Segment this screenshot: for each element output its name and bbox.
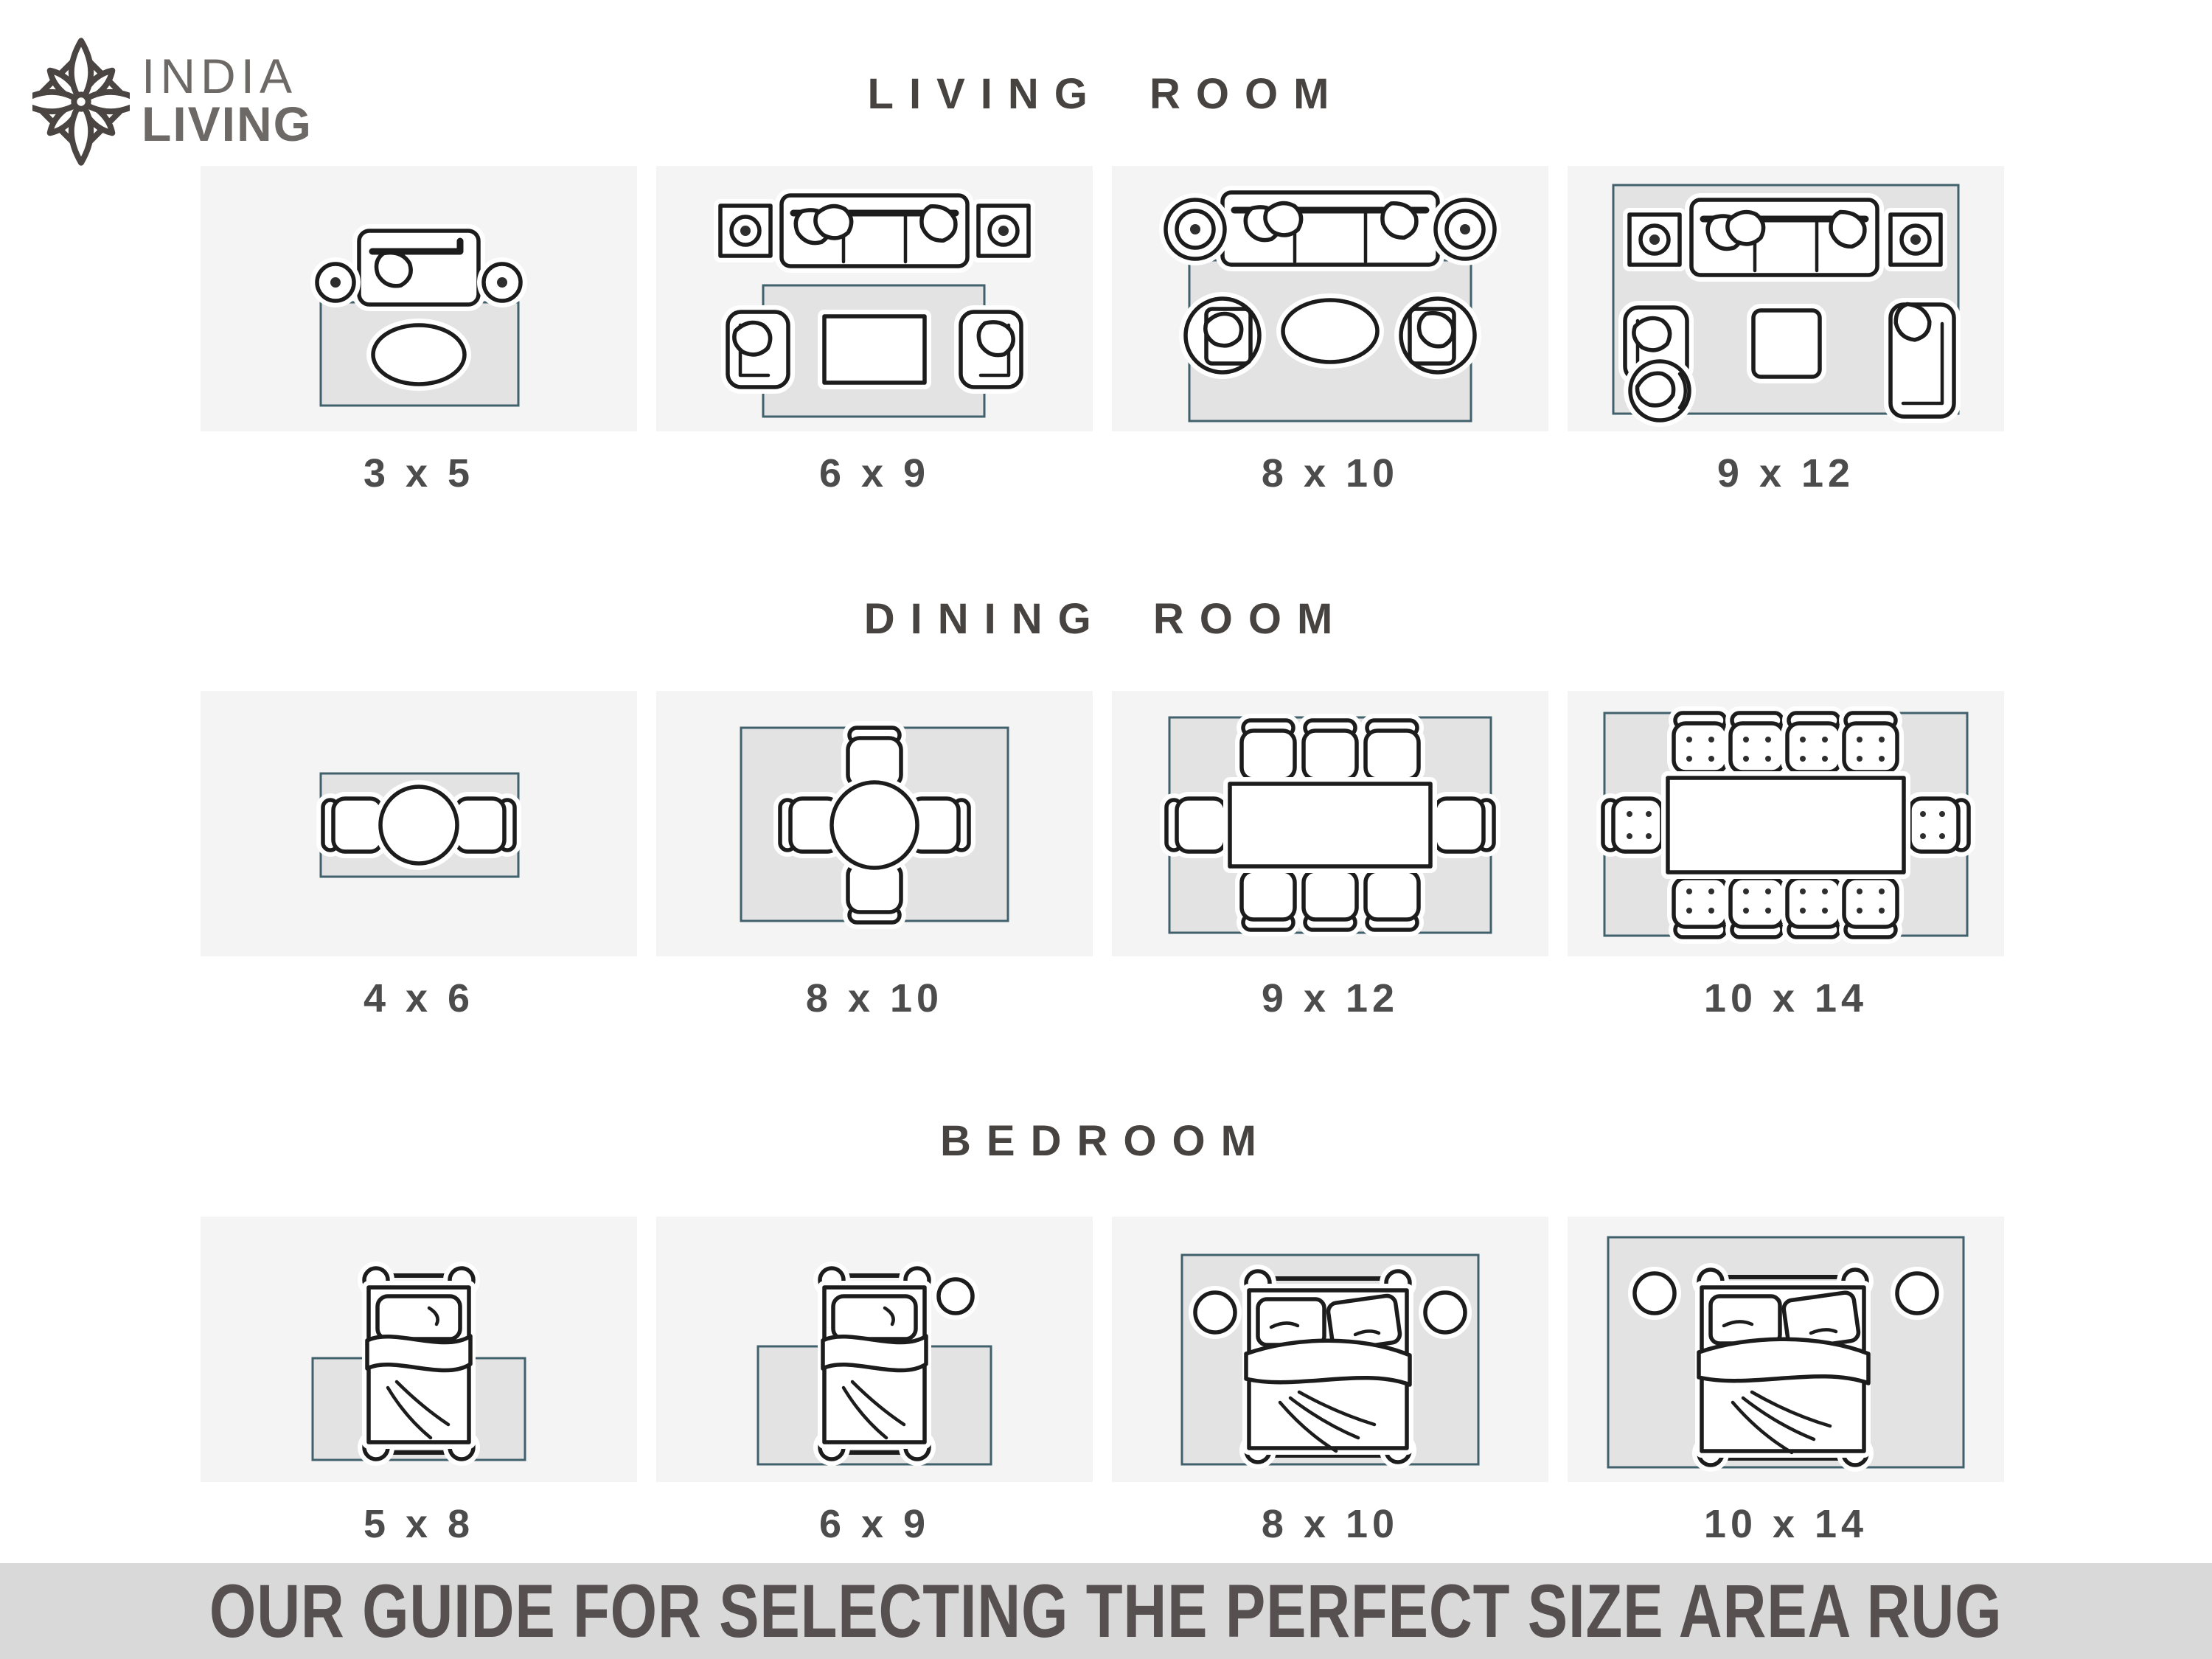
rug-size-label: 5 x 8 bbox=[201, 1501, 637, 1547]
rug-size-card: 8 x 10 bbox=[1112, 166, 1548, 496]
rug-size-label: 6 x 9 bbox=[656, 1501, 1093, 1547]
rug-size-tile bbox=[1568, 166, 2004, 431]
rug-size-card: 8 x 10 bbox=[656, 691, 1093, 1021]
rug-size-label: 4 x 6 bbox=[201, 975, 637, 1021]
living-room-row: 3 x 5 bbox=[201, 166, 2004, 496]
section-title-living-room: LIVING ROOM bbox=[0, 65, 2212, 124]
bedroom-row: 5 x 8 6 x 9 bbox=[201, 1217, 2004, 1547]
rug-size-label: 6 x 9 bbox=[656, 451, 1093, 496]
diagram-bedroom-8x10 bbox=[1112, 1217, 1548, 1482]
diagram-dining-room-9x12 bbox=[1112, 691, 1548, 956]
diagram-living-room-3x5 bbox=[201, 166, 637, 431]
rug-size-card: 10 x 14 bbox=[1568, 691, 2004, 1021]
rug-size-label: 8 x 10 bbox=[1112, 451, 1548, 496]
rug-size-card: 8 x 10 bbox=[1112, 1217, 1548, 1547]
rug-size-card: 5 x 8 bbox=[201, 1217, 637, 1547]
rug-size-tile bbox=[1568, 1217, 2004, 1482]
diagram-dining-room-8x10 bbox=[656, 691, 1093, 956]
rug-size-tile bbox=[201, 691, 637, 956]
diagram-bedroom-5x8 bbox=[201, 1217, 637, 1482]
rug-size-card: 4 x 6 bbox=[201, 691, 637, 1021]
rug-size-tile bbox=[1112, 166, 1548, 431]
rug-size-label: 10 x 14 bbox=[1568, 1501, 2004, 1547]
rug-size-label: 9 x 12 bbox=[1568, 451, 2004, 496]
section-title-bedroom: BEDROOM bbox=[0, 1112, 2212, 1171]
diagram-living-room-8x10 bbox=[1112, 166, 1548, 431]
rug-size-tile bbox=[656, 166, 1093, 431]
diagram-living-room-9x12 bbox=[1568, 166, 2004, 431]
rug-size-tile bbox=[1112, 1217, 1548, 1482]
diagram-bedroom-6x9 bbox=[656, 1217, 1093, 1482]
rug-size-tile bbox=[656, 1217, 1093, 1482]
rug-size-card: 3 x 5 bbox=[201, 166, 637, 496]
diagram-dining-room-10x14 bbox=[1568, 691, 2004, 956]
rug-size-label: 10 x 14 bbox=[1568, 975, 2004, 1021]
rug-size-label: 3 x 5 bbox=[201, 451, 637, 496]
section-title-dining-room: DINING ROOM bbox=[0, 590, 2212, 649]
rug-size-tile bbox=[1112, 691, 1548, 956]
diagram-bedroom-10x14 bbox=[1568, 1217, 2004, 1482]
diagram-living-room-6x9 bbox=[656, 166, 1093, 431]
rug-size-tile bbox=[1568, 691, 2004, 956]
footer-banner-text: OUR GUIDE FOR SELECTING THE PERFECT SIZE… bbox=[209, 1568, 2002, 1655]
rug-size-label: 8 x 10 bbox=[1112, 1501, 1548, 1547]
rug-size-card: 6 x 9 bbox=[656, 1217, 1093, 1547]
rug-size-tile bbox=[201, 1217, 637, 1482]
rug-size-tile bbox=[201, 166, 637, 431]
rug-size-card: 10 x 14 bbox=[1568, 1217, 2004, 1547]
rug-size-label: 9 x 12 bbox=[1112, 975, 1548, 1021]
rug-size-label: 8 x 10 bbox=[656, 975, 1093, 1021]
rug-size-card: 9 x 12 bbox=[1112, 691, 1548, 1021]
rug-size-tile bbox=[656, 691, 1093, 956]
dining-room-row: 4 x 6 8 x 10 bbox=[201, 691, 2004, 1021]
footer-banner: OUR GUIDE FOR SELECTING THE PERFECT SIZE… bbox=[0, 1563, 2212, 1659]
diagram-dining-room-4x6 bbox=[201, 691, 637, 956]
rug-size-card: 9 x 12 bbox=[1568, 166, 2004, 496]
rug-size-card: 6 x 9 bbox=[656, 166, 1093, 496]
